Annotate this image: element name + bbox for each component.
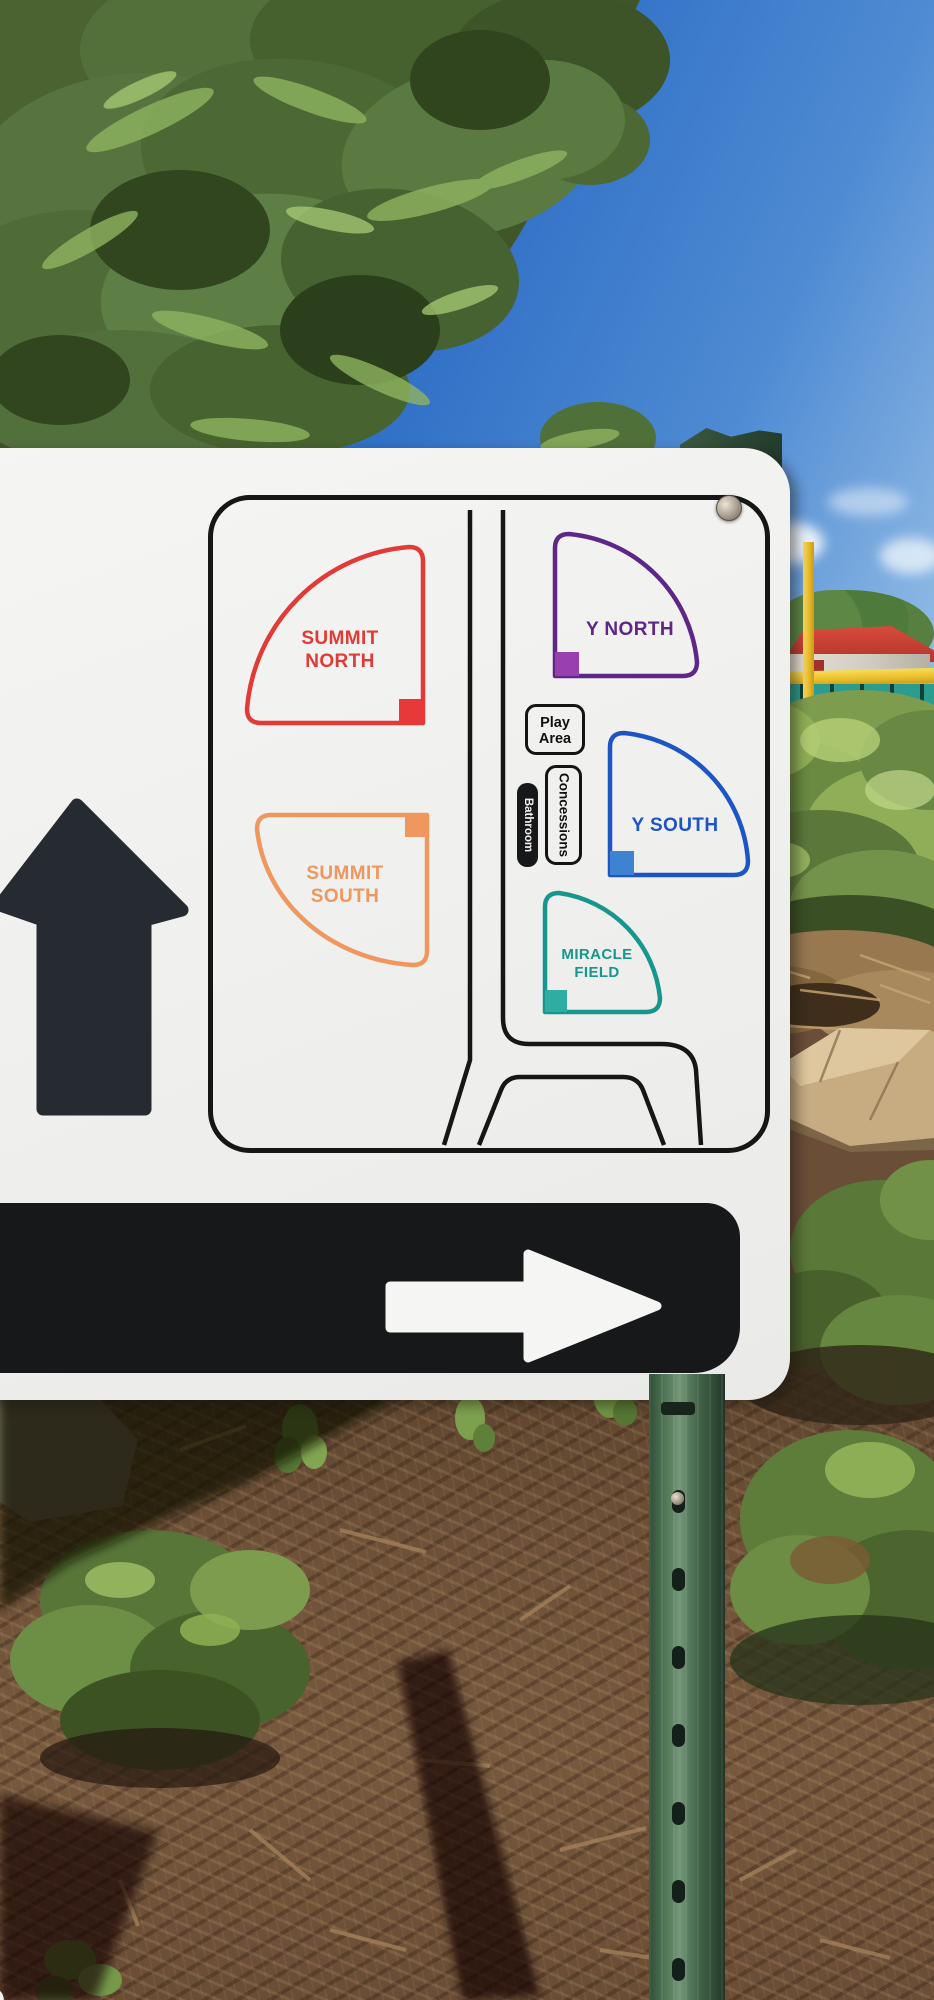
- concessions-box: Concessions: [545, 765, 582, 865]
- post-hole: [672, 1958, 685, 1981]
- direction-banner: D OF THE FACILITY): [0, 1203, 740, 1373]
- label-line: SOUTH: [275, 885, 415, 908]
- label-line: Y NORTH: [560, 618, 700, 641]
- label-line: FIELD: [537, 964, 657, 982]
- post-hole: [672, 1724, 685, 1747]
- up-arrow-icon: [0, 805, 182, 1109]
- label-summit-north: SUMMIT NORTH: [270, 627, 410, 673]
- homeplate-y-south: [610, 851, 634, 875]
- concessions-label: Concessions: [556, 773, 571, 857]
- homeplate-y-north: [555, 652, 579, 676]
- bolt-icon: [716, 495, 742, 521]
- bathroom-pill: Bathroom: [517, 783, 538, 867]
- homeplate-summit-north: [399, 699, 423, 723]
- play-area-line: Area: [528, 731, 582, 747]
- label-y-south: Y SOUTH: [605, 814, 745, 837]
- play-area-box: Play Area: [525, 704, 585, 755]
- post-hole: [672, 1880, 685, 1903]
- post-shadow: [398, 1650, 540, 2000]
- play-area-line: Play: [528, 715, 582, 731]
- homeplate-summit-south: [405, 815, 427, 837]
- label-miracle-field: MIRACLE FIELD: [537, 946, 657, 982]
- corner-shadow: [0, 1795, 158, 2000]
- road-left-line: [444, 510, 470, 1145]
- sign-post: [649, 1374, 725, 2000]
- banner-partial-glyph: D: [0, 1981, 5, 2000]
- label-summit-south: SUMMIT SOUTH: [275, 862, 415, 908]
- post-hole: [672, 1568, 685, 1591]
- bathroom-label: Bathroom: [522, 798, 534, 852]
- label-line: SUMMIT: [275, 862, 415, 885]
- right-arrow-icon: [390, 1254, 657, 1358]
- sign-shadow: [0, 1386, 420, 1610]
- label-line: MIRACLE: [537, 946, 657, 964]
- label-line: Y SOUTH: [605, 814, 745, 837]
- directional-sign: SUMMIT NORTH SUMMIT SOUTH Y NORTH Y SOUT…: [0, 448, 790, 1400]
- label-line: SUMMIT: [270, 627, 410, 650]
- post-hole: [672, 1802, 685, 1825]
- label-y-north: Y NORTH: [560, 618, 700, 641]
- label-line: NORTH: [270, 650, 410, 673]
- post-hole: [672, 1646, 685, 1669]
- homeplate-miracle: [545, 990, 567, 1012]
- outdoor-photo-scene: SUMMIT NORTH SUMMIT SOUTH Y NORTH Y SOUT…: [0, 0, 934, 2000]
- post-bolt-icon: [671, 1492, 684, 1505]
- post-slot: [661, 1402, 695, 1415]
- road-fork-line: [479, 1077, 664, 1145]
